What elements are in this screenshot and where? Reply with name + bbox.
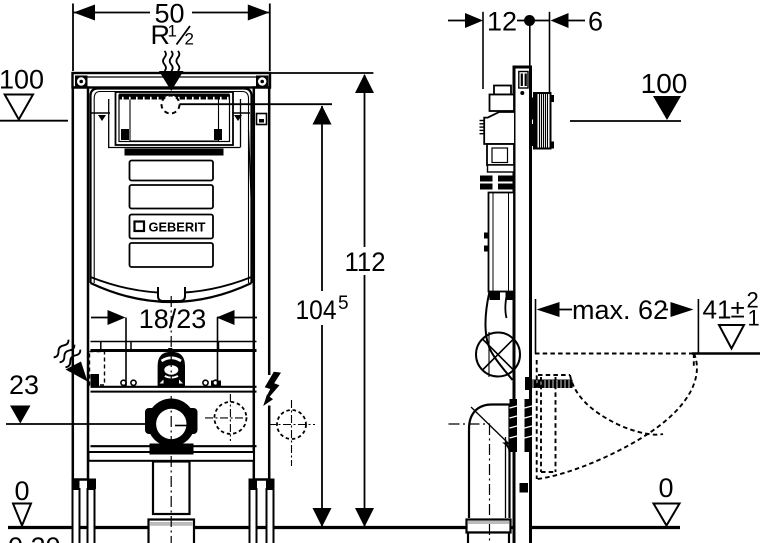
svg-text:41: 41 xyxy=(703,295,732,325)
svg-text:100: 100 xyxy=(0,65,44,95)
svg-text:±: ± xyxy=(731,294,745,324)
svg-text:1: 1 xyxy=(748,306,760,331)
svg-text:0: 0 xyxy=(658,473,673,503)
svg-text:1: 1 xyxy=(168,22,177,41)
svg-text:5: 5 xyxy=(338,293,349,314)
svg-text:2: 2 xyxy=(185,30,194,49)
svg-text:0: 0 xyxy=(14,476,29,506)
svg-text:23: 23 xyxy=(9,370,39,400)
svg-text:12: 12 xyxy=(487,7,517,37)
svg-text:max. 62: max. 62 xyxy=(572,295,668,325)
svg-text:6: 6 xyxy=(588,7,603,37)
svg-text:0.20: 0.20 xyxy=(8,532,61,543)
svg-text:104: 104 xyxy=(296,295,337,325)
svg-text:GEBERIT: GEBERIT xyxy=(149,220,206,235)
svg-text:18/23: 18/23 xyxy=(139,304,207,334)
svg-text:112: 112 xyxy=(345,247,386,277)
svg-text:100: 100 xyxy=(641,68,688,99)
